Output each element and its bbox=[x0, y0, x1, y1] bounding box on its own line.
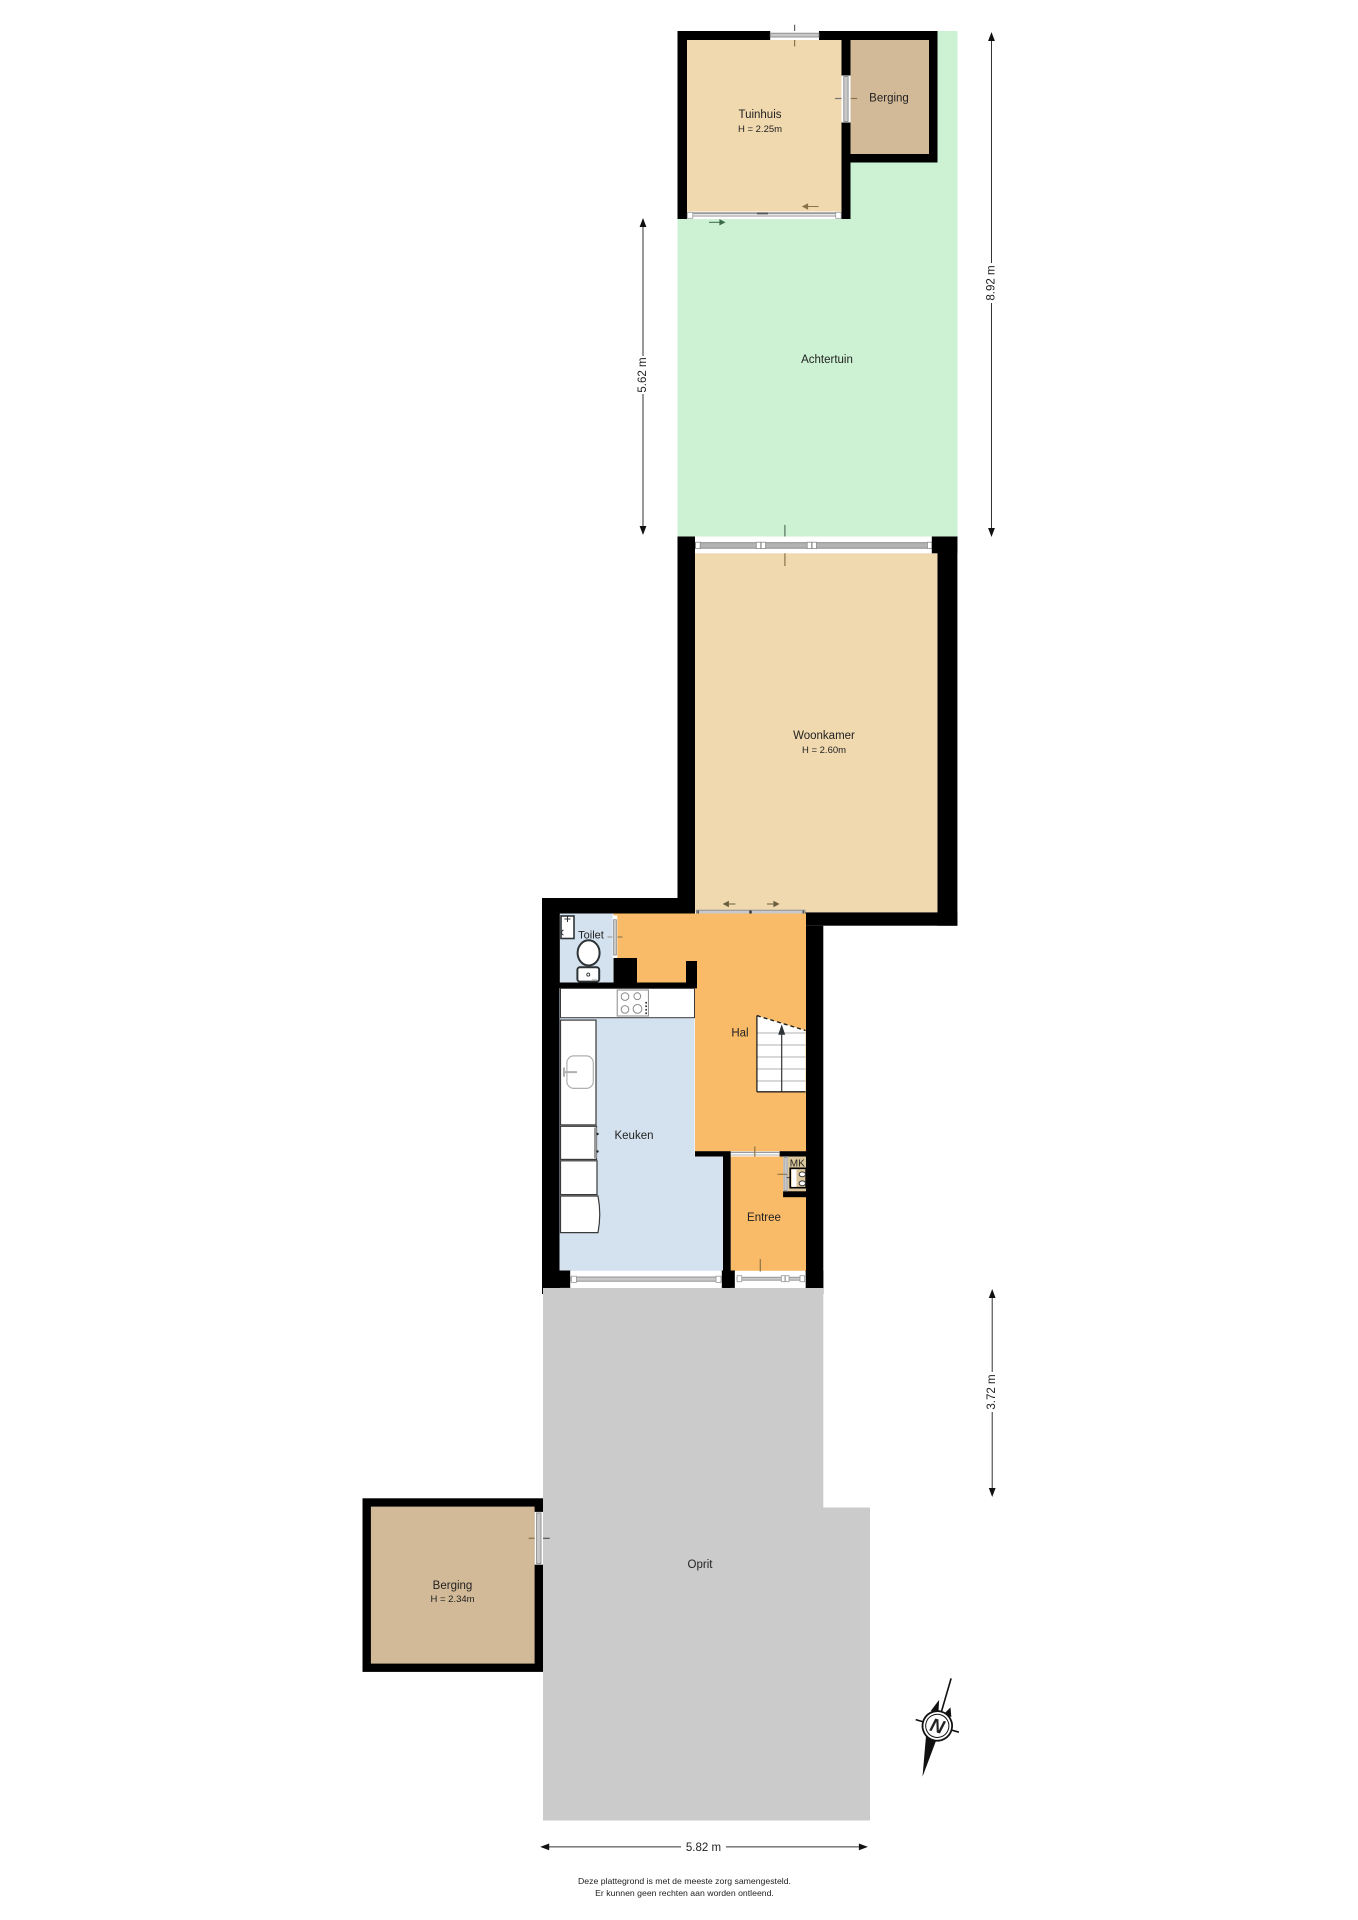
svg-text:H = 2.25m: H = 2.25m bbox=[738, 124, 782, 135]
svg-text:Hal: Hal bbox=[731, 1028, 748, 1040]
svg-text:Er kunnen geen rechten aan wor: Er kunnen geen rechten aan worden ontlee… bbox=[595, 1888, 774, 1898]
svg-text:Keuken: Keuken bbox=[614, 1130, 653, 1142]
svg-text:5.62 m: 5.62 m bbox=[637, 357, 649, 392]
svg-text:5.82 m: 5.82 m bbox=[686, 1842, 721, 1854]
svg-text:3.72 m: 3.72 m bbox=[986, 1374, 998, 1409]
svg-text:Achtertuin: Achtertuin bbox=[801, 354, 853, 366]
svg-text:Berging: Berging bbox=[869, 93, 909, 105]
svg-text:H = 2.60m: H = 2.60m bbox=[802, 745, 846, 756]
svg-text:Berging: Berging bbox=[433, 1580, 473, 1592]
svg-text:Deze plattegrond is met de mee: Deze plattegrond is met de meeste zorg s… bbox=[578, 1876, 791, 1886]
svg-text:8.92 m: 8.92 m bbox=[986, 265, 998, 300]
svg-text:H = 2.34m: H = 2.34m bbox=[430, 1594, 474, 1605]
svg-text:Woonkamer: Woonkamer bbox=[793, 730, 855, 742]
svg-text:Entree: Entree bbox=[747, 1212, 781, 1224]
svg-text:Oprit: Oprit bbox=[688, 1559, 714, 1571]
svg-text:Tuinhuis: Tuinhuis bbox=[738, 109, 781, 121]
